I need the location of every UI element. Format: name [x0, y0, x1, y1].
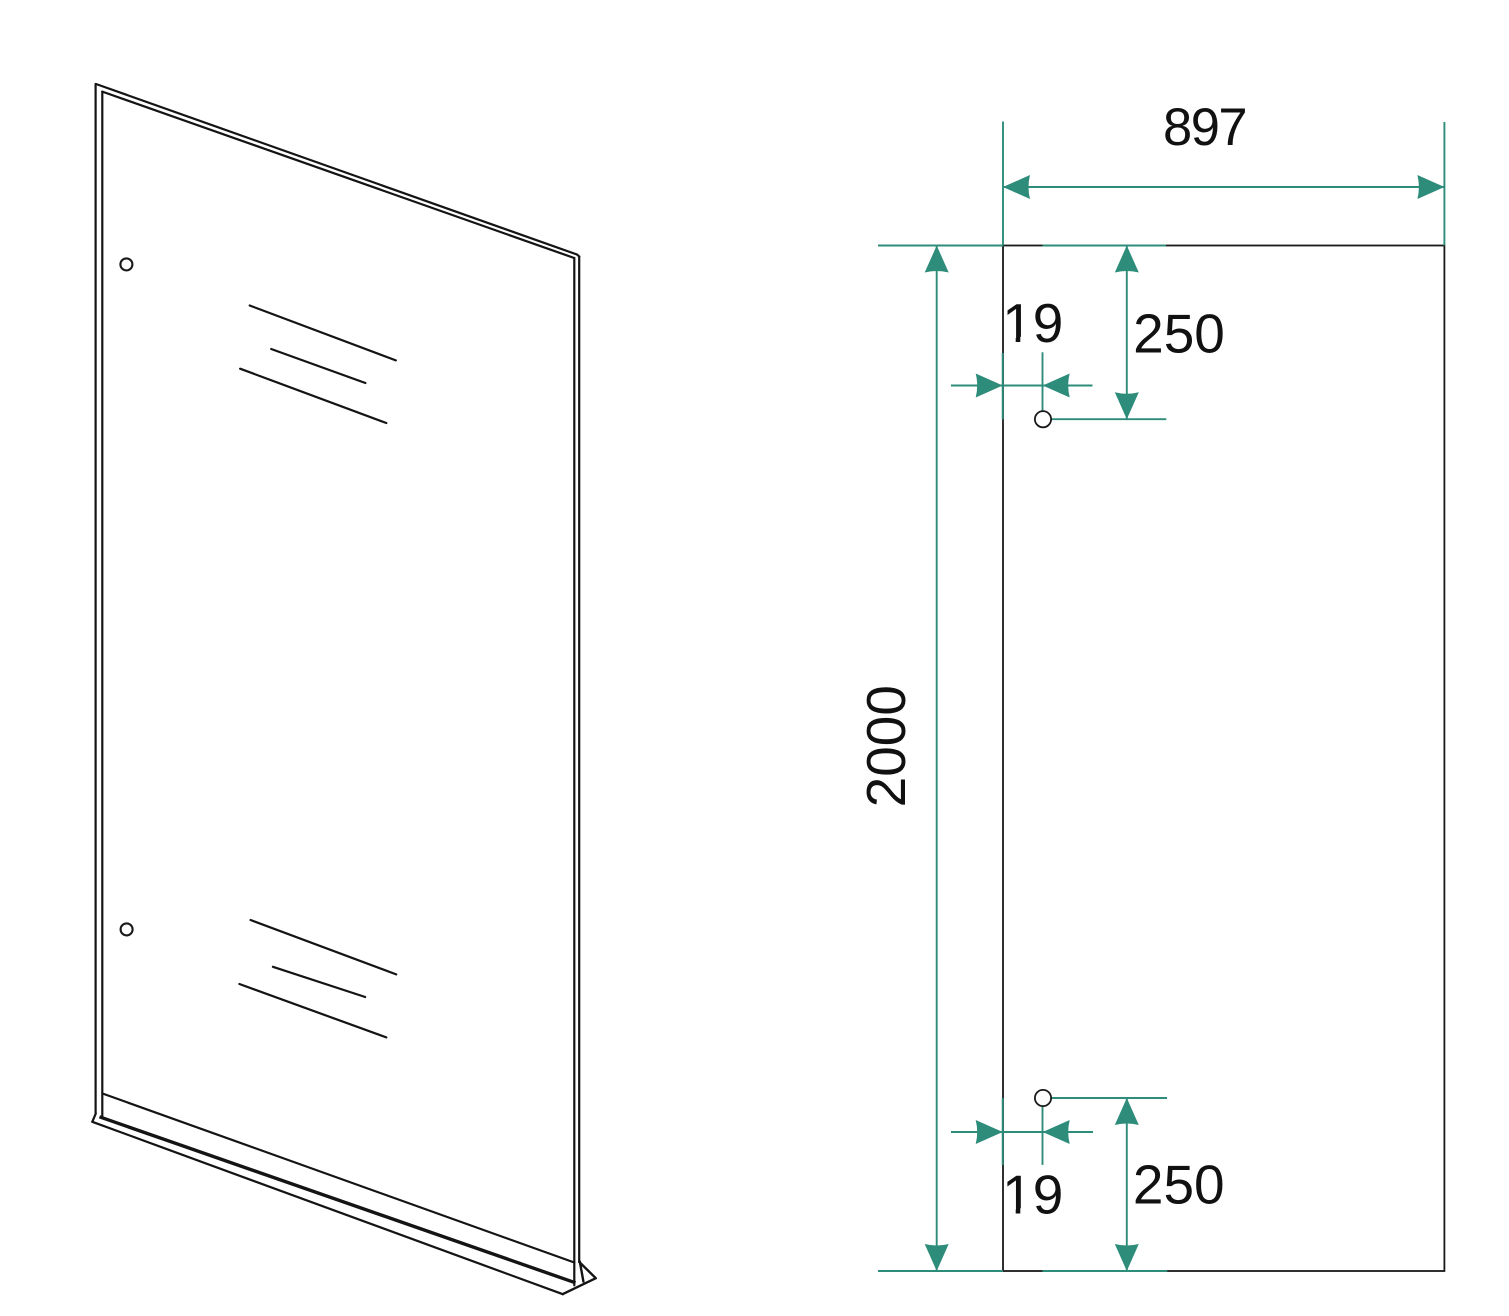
svg-text:19: 19	[1002, 1163, 1063, 1225]
svg-text:250: 250	[1133, 303, 1225, 365]
svg-text:897: 897	[1163, 98, 1246, 157]
svg-text:2000: 2000	[855, 685, 917, 807]
svg-text:250: 250	[1133, 1154, 1225, 1216]
svg-text:19: 19	[1002, 292, 1063, 354]
